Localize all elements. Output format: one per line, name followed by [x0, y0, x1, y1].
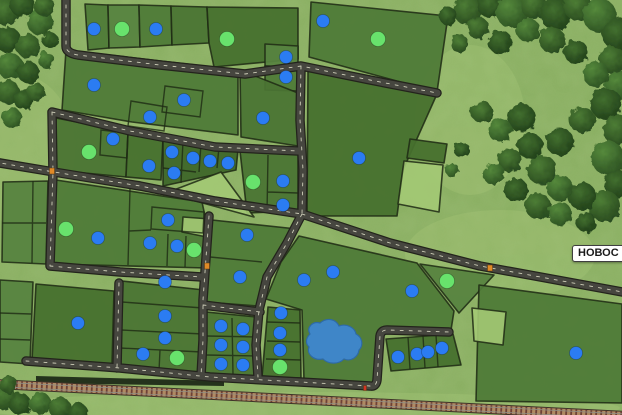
plot-marker-blue[interactable]: [422, 346, 435, 359]
plot-marker-blue[interactable]: [274, 327, 287, 340]
map-viewport[interactable]: { "map_label": { "text": "НОВОС" }, "mar…: [0, 0, 622, 415]
plot-marker-blue[interactable]: [436, 342, 449, 355]
plot-marker-blue[interactable]: [406, 285, 419, 298]
plot-marker-blue[interactable]: [166, 146, 179, 159]
plot-marker-blue[interactable]: [144, 111, 157, 124]
plot-marker-blue[interactable]: [92, 232, 105, 245]
plot-marker-green[interactable]: [440, 274, 455, 289]
plot-marker-blue[interactable]: [72, 317, 85, 330]
plot-marker-blue[interactable]: [570, 347, 583, 360]
plot-marker-blue[interactable]: [237, 341, 250, 354]
plot-marker-blue[interactable]: [159, 310, 172, 323]
plot-marker-blue[interactable]: [237, 359, 250, 372]
settlement-label[interactable]: НОВОС: [572, 245, 622, 262]
plot-marker-blue[interactable]: [168, 167, 181, 180]
plot-marker-green[interactable]: [115, 22, 130, 37]
map-canvas[interactable]: [0, 0, 622, 415]
plot-marker-blue[interactable]: [187, 152, 200, 165]
road-sign-red: [364, 386, 367, 391]
plot-marker-blue[interactable]: [353, 152, 366, 165]
road-sign-orange: [488, 265, 493, 271]
plot-marker-blue[interactable]: [298, 274, 311, 287]
plot-marker-blue[interactable]: [204, 155, 217, 168]
plot-marker-blue[interactable]: [280, 51, 293, 64]
plot-marker-blue[interactable]: [234, 271, 247, 284]
plot-marker-blue[interactable]: [237, 323, 250, 336]
road-sign-orange: [205, 263, 210, 269]
plot-marker-blue[interactable]: [215, 339, 228, 352]
plot-marker-blue[interactable]: [215, 358, 228, 371]
plot-marker-blue[interactable]: [222, 157, 235, 170]
plot-marker-blue[interactable]: [137, 348, 150, 361]
plot-marker-blue[interactable]: [150, 23, 163, 36]
plot-marker-blue[interactable]: [317, 15, 330, 28]
plot-marker-blue[interactable]: [277, 199, 290, 212]
plot-marker-green[interactable]: [220, 32, 235, 47]
plot-marker-blue[interactable]: [88, 79, 101, 92]
plot-marker-blue[interactable]: [178, 94, 191, 107]
plot-marker-blue[interactable]: [327, 266, 340, 279]
plot-marker-blue[interactable]: [280, 71, 293, 84]
plot-marker-green[interactable]: [246, 175, 261, 190]
plot-marker-green[interactable]: [170, 351, 185, 366]
plot-marker-blue[interactable]: [144, 237, 157, 250]
road-sign-orange: [50, 168, 55, 174]
plot-marker-green[interactable]: [187, 243, 202, 258]
plot-marker-green[interactable]: [273, 360, 288, 375]
plot-marker-blue[interactable]: [162, 214, 175, 227]
plot-marker-blue[interactable]: [275, 307, 288, 320]
plot-marker-blue[interactable]: [171, 240, 184, 253]
plot-marker-blue[interactable]: [392, 351, 405, 364]
plot-marker-blue[interactable]: [143, 160, 156, 173]
plot-marker-blue[interactable]: [241, 229, 254, 242]
plot-marker-blue[interactable]: [277, 175, 290, 188]
plot-marker-blue[interactable]: [257, 112, 270, 125]
plot-marker-green[interactable]: [59, 222, 74, 237]
plot-marker-blue[interactable]: [159, 276, 172, 289]
plot-marker-blue[interactable]: [274, 344, 287, 357]
plot-marker-blue[interactable]: [88, 23, 101, 36]
plot-marker-blue[interactable]: [107, 133, 120, 146]
plot-marker-green[interactable]: [82, 145, 97, 160]
plot-marker-blue[interactable]: [215, 320, 228, 333]
plot-marker-green[interactable]: [371, 32, 386, 47]
plot-marker-blue[interactable]: [159, 332, 172, 345]
